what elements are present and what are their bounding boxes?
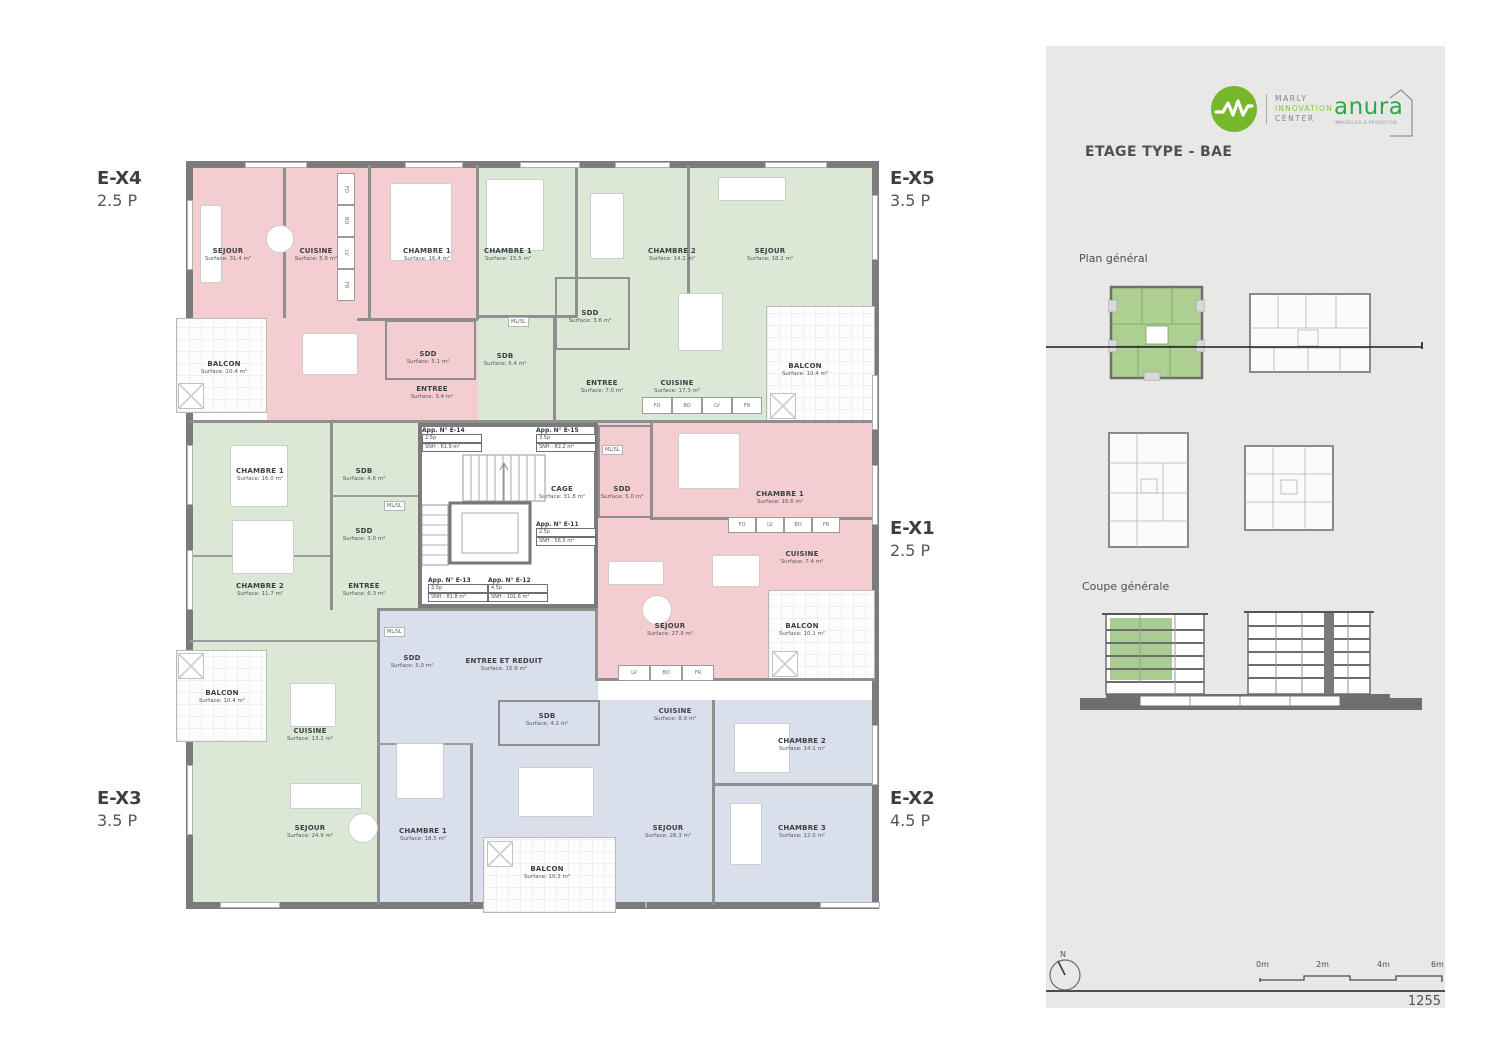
appliance-label: FO [337, 173, 355, 205]
kitchen-strip-ex5: FO BO LV FR [642, 397, 762, 414]
appliance-label: FR [337, 269, 355, 301]
kitchen-strip-ex2: LV BO FR [618, 665, 714, 681]
furniture [396, 743, 444, 799]
room-label: BALCONSurface: 10.4 m² [201, 360, 247, 376]
room-label: SEJOURSurface: 18.2 m² [747, 247, 793, 263]
mini-plan-2 [1248, 292, 1372, 374]
wall [368, 165, 371, 318]
scale-label-6m: 6m [1431, 960, 1444, 969]
footer-rule [1046, 990, 1445, 992]
furniture [642, 595, 672, 625]
appliance-label: LV [618, 665, 650, 681]
mini-plan-3 [1107, 431, 1190, 549]
balcony-hatch [772, 651, 798, 677]
room-label: SDDSurface: 3.0 m² [343, 527, 386, 543]
appliance-label: FO [642, 397, 672, 414]
mlsl-label: ML/SL [602, 445, 623, 455]
plan-general-label: Plan général [1079, 252, 1148, 265]
furniture [348, 813, 378, 843]
room-label: CHAMBRE 2Surface: 11.7 m² [236, 582, 284, 598]
room-label: CUISINESurface: 13.2 m² [287, 727, 333, 743]
window [615, 162, 670, 168]
room-label: SEJOURSurface: 31.4 m² [205, 247, 251, 263]
mlsl-label: ML/SL [508, 317, 529, 327]
window [872, 465, 878, 525]
furniture [590, 193, 624, 259]
furniture [712, 555, 760, 587]
unit-pieces: 2.5 P [97, 191, 142, 210]
appliance-label: BO [784, 517, 812, 533]
furniture [730, 803, 762, 865]
app-box-e11: App. N° E-11 2.5p SNH : 56.5 m² [536, 521, 596, 546]
window [245, 162, 307, 168]
room-label: CHAMBRE 1Surface: 15.5 m² [484, 247, 532, 263]
window [187, 550, 193, 610]
room-label: BALCONSurface: 10.3 m² [524, 865, 570, 881]
unit-pieces: 2.5 P [890, 541, 935, 560]
room-label: SEJOURSurface: 27.9 m² [647, 622, 693, 638]
app-box-e15: App. N° E-15 3.5p SNH : 82.2 m² [536, 427, 596, 452]
room-label: ENTREE ET REDUITSurface: 15.6 m² [465, 657, 542, 673]
furniture [266, 225, 294, 253]
room-label: CHAMBRE 2Surface: 14.2 m² [648, 247, 696, 263]
sheet-title: ETAGE TYPE - BAE [1085, 144, 1232, 160]
unit-pieces: 3.5 P [890, 191, 935, 210]
furniture [200, 205, 222, 283]
unit-id: E-X4 [97, 168, 142, 189]
furniture [302, 333, 358, 375]
marly-innovation-center-logo: MARLY INNOVATION CENTER [1210, 85, 1333, 133]
furniture [518, 767, 594, 817]
room-label: CUISINESurface: 8.9 m² [654, 707, 697, 723]
cage-label: CAGESurface: 31.8 m² [539, 485, 585, 501]
mlsl-label: ML/SL [384, 627, 405, 637]
coupe-generale-label: Coupe générale [1082, 580, 1169, 593]
unit-pieces: 4.5 P [890, 811, 935, 830]
section-cut-line [1046, 342, 1428, 352]
wall [190, 640, 377, 642]
page-number: 1255 [1408, 994, 1441, 1009]
north-arrow-icon [1048, 958, 1082, 992]
wall [330, 495, 420, 497]
room-label: CHAMBRE 1Surface: 18.5 m² [399, 827, 447, 843]
wall [330, 420, 333, 610]
page: E-X4 2.5 P E-X5 3.5 P E-X1 2.5 P E-X3 3.… [0, 0, 1500, 1061]
furniture [718, 177, 786, 201]
mini-plan-4 [1243, 444, 1335, 532]
scale-bar [1258, 972, 1444, 984]
window [645, 902, 647, 908]
unit-label-ex3: E-X3 3.5 P [97, 788, 142, 830]
furniture [232, 520, 294, 574]
room-label: ENTREESurface: 7.0 m² [581, 379, 624, 395]
furniture [678, 433, 740, 489]
window [187, 445, 193, 505]
anura-logo: anura IMMOBILIER & PROMOTION [1334, 96, 1412, 125]
room-label: CHAMBRE 3Surface: 12.0 m² [778, 824, 826, 840]
appliance-label: LV [337, 237, 355, 269]
balcony-hatch [178, 383, 204, 409]
wall [470, 743, 473, 905]
window [520, 162, 580, 168]
window [765, 162, 827, 168]
app-box-e13: App. N° E-13 3.5p SNH : 81.8 m² [428, 577, 488, 602]
unit-label-ex1: E-X1 2.5 P [890, 518, 935, 560]
furniture [608, 561, 664, 585]
wall [712, 783, 875, 786]
appliance-label: FR [732, 397, 762, 414]
room-label: SDDSurface: 5.1 m² [407, 350, 450, 366]
unit-id: E-X5 [890, 168, 935, 189]
mic-wordmark: MARLY INNOVATION CENTER [1266, 94, 1333, 123]
appliance-label: BO [650, 665, 682, 681]
unit-label-ex2: E-X2 4.5 P [890, 788, 935, 830]
window [220, 902, 280, 908]
balcony-hatch [487, 841, 513, 867]
room-label: CHAMBRE 1Surface: 16.6 m² [756, 490, 804, 506]
wall [712, 700, 715, 905]
room-label: BALCONSurface: 10.4 m² [199, 689, 245, 705]
wall [650, 423, 653, 520]
room-label: CUISINESurface: 5.6 m² [295, 247, 338, 263]
room-label: ENTREESurface: 6.3 m² [343, 582, 386, 598]
room-label: BALCONSurface: 10.4 m² [782, 362, 828, 378]
unit-id: E-X2 [890, 788, 935, 809]
balcony-hatch [178, 653, 204, 679]
room-label: BALCONSurface: 10.1 m² [779, 622, 825, 638]
room-partition-sdd-ex1 [598, 425, 653, 518]
room-label: SDDSurface: 5.0 m² [601, 485, 644, 501]
window [872, 195, 878, 260]
scale-label-2m: 2m [1316, 960, 1329, 969]
anura-house-icon [1388, 86, 1422, 146]
unit-pieces: 3.5 P [97, 811, 142, 830]
scale-label-0m: 0m [1256, 960, 1269, 969]
room-label: SDBSurface: 4.6 m² [343, 467, 386, 483]
room-label: SDDSurface: 3.6 m² [569, 309, 612, 325]
room-label: CHAMBRE 1Surface: 16.4 m² [403, 247, 451, 263]
furniture [290, 783, 362, 809]
room-label: CUISINESurface: 7.4 m² [781, 550, 824, 566]
room-label: CHAMBRE 2Surface: 14.1 m² [778, 737, 826, 753]
window [405, 162, 463, 168]
balcony-hatch [770, 393, 796, 419]
appliance-label: BO [337, 205, 355, 237]
unit-id: E-X1 [890, 518, 935, 539]
window [820, 902, 880, 908]
appliance-label: BO [672, 397, 702, 414]
room-label: SDBSurface: 5.4 m² [484, 352, 527, 368]
app-box-e12: App. N° E-12 4.5p SNH : 101.6 m² [488, 577, 548, 602]
wall [476, 165, 479, 320]
apartment-ex2-area [377, 700, 875, 905]
scale-label-4m: 4m [1377, 960, 1390, 969]
room-label: SDDSurface: 5.0 m² [391, 654, 434, 670]
appliance-label: LV [702, 397, 732, 414]
appliance-label: FR [682, 665, 714, 681]
room-label: CHAMBRE 1Surface: 16.0 m² [236, 467, 284, 483]
room-label: ENTREESurface: 3.4 m² [411, 385, 454, 401]
unit-label-ex5: E-X5 3.5 P [890, 168, 935, 210]
appliance-label: LV [756, 517, 784, 533]
app-box-e14: App. N° E-14 2.5p SNH : 61.9 m² [422, 427, 482, 452]
mic-circle-icon [1210, 85, 1258, 133]
appliance-label: FO [728, 517, 756, 533]
room-label: CUISINESurface: 17.3 m² [654, 379, 700, 395]
kitchen-strip-ex1: FO LV BO FR [728, 517, 840, 533]
window [872, 375, 878, 430]
floor-plan: FO BO LV FR FO BO LV FR FO LV BO FR LV B… [190, 165, 875, 905]
appliance-label: FR [812, 517, 840, 533]
furniture [290, 683, 336, 727]
room-label: SDBSurface: 4.2 m² [526, 712, 569, 728]
furniture [486, 179, 544, 251]
wall [377, 608, 598, 611]
window [187, 200, 193, 270]
apartment-ex3-area [190, 420, 420, 610]
mlsl-label: ML/SL [384, 501, 405, 511]
sidebar-panel: MARLY INNOVATION CENTER anura IMMOBILIER… [1046, 46, 1445, 1008]
furniture [678, 293, 723, 351]
room-label: SEJOURSurface: 24.9 m² [287, 824, 333, 840]
section-drawing [1080, 606, 1422, 718]
unit-id: E-X3 [97, 788, 142, 809]
room-label: SEJOURSurface: 28.3 m² [645, 824, 691, 840]
kitchen-strip-ex4: FO BO LV FR [337, 173, 355, 301]
unit-label-ex4: E-X4 2.5 P [97, 168, 142, 210]
mini-plan-highlighted [1108, 284, 1205, 381]
wall [377, 608, 380, 905]
window [872, 725, 878, 785]
window [187, 765, 193, 835]
